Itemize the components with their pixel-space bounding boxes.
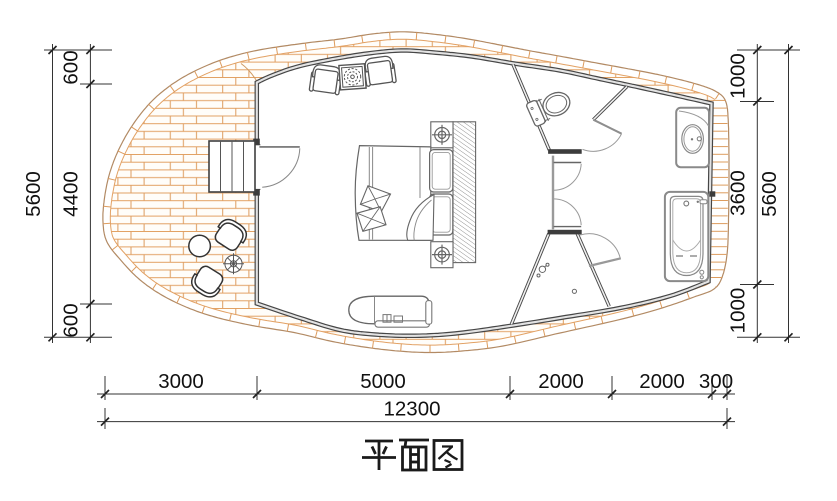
svg-text:2000: 2000: [538, 370, 584, 393]
svg-text:3000: 3000: [158, 370, 204, 393]
svg-text:600: 600: [60, 50, 83, 84]
svg-text:12300: 12300: [383, 398, 440, 421]
svg-text:1000: 1000: [727, 288, 750, 334]
svg-text:5600: 5600: [758, 171, 781, 217]
svg-text:5600: 5600: [22, 171, 45, 217]
svg-text:5000: 5000: [360, 370, 406, 393]
svg-text:300: 300: [699, 370, 733, 393]
svg-text:4400: 4400: [60, 171, 83, 217]
svg-text:1000: 1000: [727, 53, 750, 99]
svg-text:2000: 2000: [639, 370, 685, 393]
svg-text:600: 600: [60, 303, 83, 337]
svg-text:3600: 3600: [727, 170, 750, 216]
